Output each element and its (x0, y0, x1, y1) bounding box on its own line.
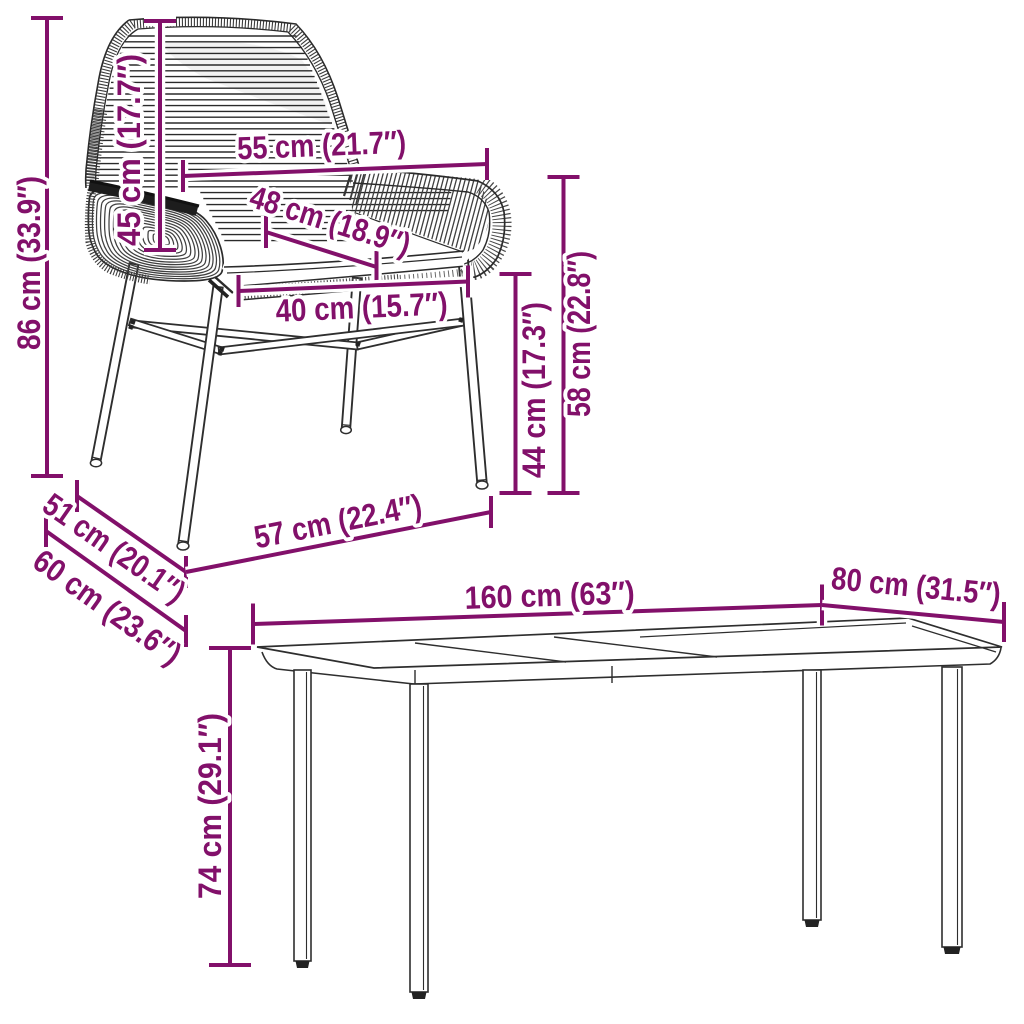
svg-text:40 cm (15.7″): 40 cm (15.7″) (275, 285, 448, 328)
svg-text:55 cm (21.7″): 55 cm (21.7″) (236, 124, 406, 167)
svg-text:160 cm (63″): 160 cm (63″) (464, 574, 635, 616)
svg-text:44 cm (17.3″): 44 cm (17.3″) (516, 302, 552, 478)
svg-text:86 cm (33.9″): 86 cm (33.9″) (11, 176, 47, 350)
svg-text:45 cm (17.7″): 45 cm (17.7″) (111, 54, 147, 246)
svg-text:74 cm (29.1″): 74 cm (29.1″) (192, 713, 228, 899)
svg-text:58 cm (22.8″): 58 cm (22.8″) (561, 251, 597, 417)
